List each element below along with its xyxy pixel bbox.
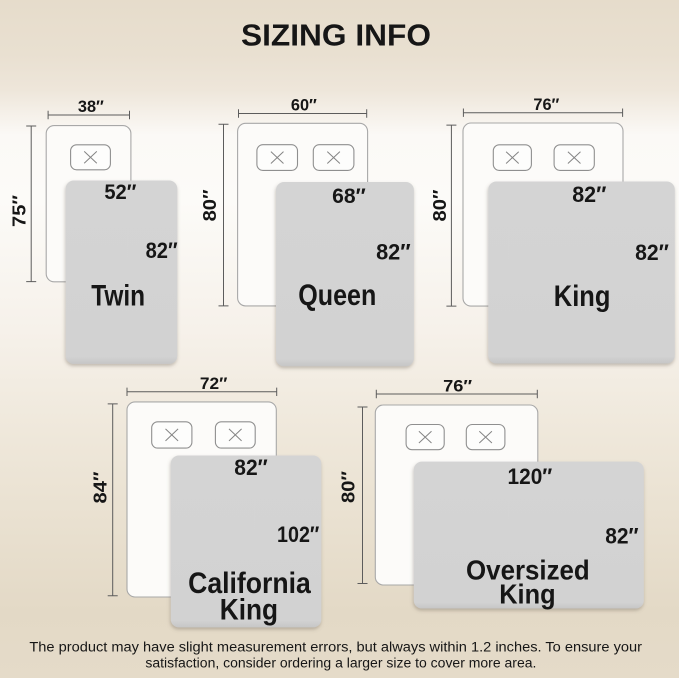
svg-text:82″: 82″: [376, 239, 411, 264]
svg-text:80″: 80″: [430, 189, 450, 221]
svg-text:82″: 82″: [635, 240, 669, 265]
svg-text:72″: 72″: [200, 374, 228, 393]
svg-text:SIZING INFO: SIZING INFO: [241, 18, 431, 53]
svg-text:82″: 82″: [146, 238, 178, 263]
svg-text:King: King: [220, 594, 278, 627]
svg-text:76″: 76″: [443, 377, 472, 396]
svg-text:75″: 75″: [9, 195, 29, 227]
svg-text:84″: 84″: [90, 471, 110, 503]
svg-text:80″: 80″: [200, 189, 220, 221]
svg-text:King: King: [499, 579, 555, 610]
svg-text:satisfaction, consider orderin: satisfaction, consider ordering a larger…: [145, 656, 536, 671]
svg-text:King: King: [554, 280, 611, 313]
svg-text:82″: 82″: [234, 455, 268, 480]
svg-text:80″: 80″: [338, 471, 358, 503]
svg-text:68″: 68″: [332, 184, 366, 208]
svg-text:76″: 76″: [533, 95, 559, 114]
svg-text:82″: 82″: [572, 182, 607, 207]
svg-text:60″: 60″: [291, 96, 317, 115]
svg-text:52″: 52″: [104, 180, 136, 204]
svg-text:The product may have slight me: The product may have slight measurement …: [29, 640, 642, 655]
svg-text:82″: 82″: [605, 523, 639, 548]
svg-text:102″: 102″: [277, 522, 320, 547]
svg-text:120″: 120″: [508, 464, 553, 489]
svg-text:38″: 38″: [78, 97, 104, 116]
svg-text:Queen: Queen: [298, 279, 376, 312]
svg-text:Twin: Twin: [91, 280, 145, 313]
